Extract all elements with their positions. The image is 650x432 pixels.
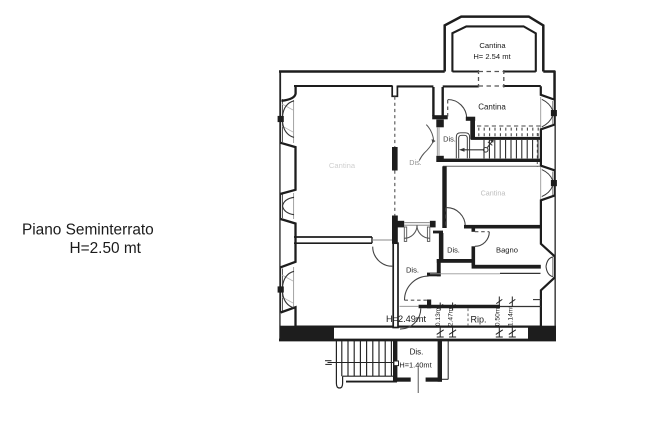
svg-text:Bagno: Bagno xyxy=(496,246,518,255)
svg-text:H=1.40mt: H=1.40mt xyxy=(399,360,431,369)
svg-text:H=2.49mt: H=2.49mt xyxy=(386,314,427,324)
svg-text:Dis.: Dis. xyxy=(447,246,460,255)
svg-text:0.13mt: 0.13mt xyxy=(435,306,442,326)
svg-text:Cantina: Cantina xyxy=(479,41,506,50)
svg-text:H= 2.54 mt: H= 2.54 mt xyxy=(473,52,511,61)
svg-text:Cantina: Cantina xyxy=(478,103,506,112)
svg-text:Dis.: Dis. xyxy=(406,266,419,275)
svg-text:Rip.: Rip. xyxy=(470,314,486,324)
svg-text:H=2.50 mt: H=2.50 mt xyxy=(70,240,142,257)
svg-text:Cantina: Cantina xyxy=(329,161,356,170)
svg-text:2.47mt: 2.47mt xyxy=(448,306,455,326)
svg-text:Dis.: Dis. xyxy=(409,158,421,167)
svg-text:Cantina: Cantina xyxy=(481,189,506,198)
svg-text:1.14mt: 1.14mt xyxy=(507,306,514,326)
svg-text:Piano Seminterrato: Piano Seminterrato xyxy=(22,222,154,239)
svg-text:Dis.: Dis. xyxy=(443,135,456,144)
svg-text:Dis.: Dis. xyxy=(410,348,424,357)
svg-text:0.50mt: 0.50mt xyxy=(494,306,501,326)
